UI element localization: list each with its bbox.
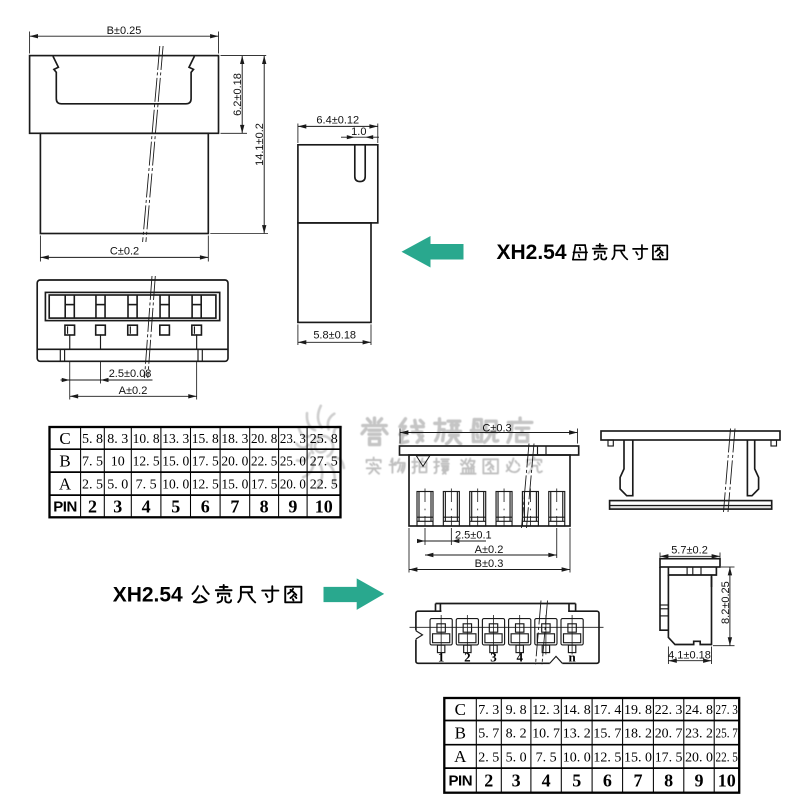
svg-text:23. 2: 23. 2: [685, 727, 713, 742]
svg-text:7. 3: 7. 3: [478, 703, 499, 718]
svg-text:2: 2: [464, 650, 471, 665]
svg-text:PIN: PIN: [53, 498, 77, 515]
svg-text:5: 5: [572, 771, 581, 791]
svg-text:3: 3: [113, 496, 122, 516]
svg-text:22. 3: 22. 3: [655, 703, 683, 718]
svg-text:17. 5: 17. 5: [192, 455, 219, 470]
svg-text:B±0.3: B±0.3: [475, 558, 504, 570]
svg-text:25. 7: 25. 7: [716, 727, 738, 742]
svg-text:PIN: PIN: [449, 773, 473, 790]
svg-text:10: 10: [718, 771, 736, 791]
svg-text:22. 5: 22. 5: [251, 455, 277, 470]
svg-text:13. 3: 13. 3: [162, 432, 189, 447]
svg-text:10: 10: [111, 455, 125, 470]
svg-text:15. 0: 15. 0: [624, 750, 652, 765]
svg-text:5. 0: 5. 0: [107, 478, 128, 493]
svg-text:6: 6: [603, 771, 612, 791]
svg-text:12. 5: 12. 5: [192, 478, 219, 493]
svg-text:10. 8: 10. 8: [133, 432, 160, 447]
svg-text:4: 4: [542, 771, 551, 791]
svg-text:15. 8: 15. 8: [192, 432, 219, 447]
svg-text:4: 4: [516, 650, 523, 665]
svg-text:2: 2: [88, 496, 97, 516]
svg-text:20. 8: 20. 8: [251, 432, 277, 447]
svg-text:A: A: [59, 474, 72, 493]
svg-text:A: A: [454, 747, 467, 766]
svg-text:C: C: [455, 700, 466, 719]
svg-text:5. 8: 5. 8: [82, 432, 103, 447]
svg-text:7. 5: 7. 5: [136, 478, 157, 493]
svg-text:15. 7: 15. 7: [593, 727, 621, 742]
svg-text:6: 6: [201, 496, 210, 516]
svg-text:12. 5: 12. 5: [593, 750, 621, 765]
svg-text:1.0: 1.0: [351, 126, 366, 138]
svg-text:17. 4: 17. 4: [593, 703, 621, 718]
svg-text:10. 0: 10. 0: [162, 478, 189, 493]
svg-text:10: 10: [315, 496, 333, 516]
svg-text:13. 2: 13. 2: [563, 727, 591, 742]
svg-text:B: B: [455, 723, 466, 742]
svg-text:24. 8: 24. 8: [685, 703, 713, 718]
svg-text:5. 0: 5. 0: [506, 750, 527, 765]
svg-text:10. 0: 10. 0: [563, 750, 591, 765]
svg-text:2: 2: [484, 771, 493, 791]
svg-text:18. 3: 18. 3: [221, 432, 248, 447]
svg-text:XH2.54: XH2.54: [113, 584, 183, 607]
svg-text:5.8±0.18: 5.8±0.18: [313, 329, 356, 341]
svg-text:4: 4: [142, 496, 151, 516]
svg-text:6.2±0.18: 6.2±0.18: [232, 73, 244, 116]
svg-text:B: B: [59, 451, 70, 470]
svg-text:9: 9: [695, 771, 704, 791]
svg-text:5: 5: [171, 496, 180, 516]
svg-text:3: 3: [512, 771, 521, 791]
svg-text:17. 5: 17. 5: [655, 750, 683, 765]
svg-text:8. 3: 8. 3: [107, 432, 128, 447]
svg-text:22. 5: 22. 5: [310, 478, 338, 493]
svg-text:2. 5: 2. 5: [82, 478, 103, 493]
svg-text:A±0.2: A±0.2: [119, 385, 148, 397]
svg-text:XH2.54: XH2.54: [497, 241, 567, 264]
svg-text:17. 5: 17. 5: [251, 478, 277, 493]
svg-text:A±0.2: A±0.2: [475, 544, 504, 556]
svg-text:7: 7: [634, 771, 643, 791]
svg-text:1: 1: [438, 650, 445, 665]
svg-text:4.1±0.18: 4.1±0.18: [668, 649, 711, 661]
svg-text:20. 0: 20. 0: [685, 750, 713, 765]
svg-text:9. 8: 9. 8: [506, 703, 527, 718]
svg-text:5. 7: 5. 7: [478, 727, 499, 742]
svg-text:7: 7: [230, 496, 239, 516]
svg-text:2. 5: 2. 5: [478, 750, 499, 765]
svg-text:C±0.3: C±0.3: [482, 423, 511, 435]
svg-text:20. 0: 20. 0: [280, 478, 306, 493]
svg-text:8. 2: 8. 2: [506, 727, 527, 742]
svg-text:25. 0: 25. 0: [280, 455, 306, 470]
svg-text:12. 5: 12. 5: [133, 455, 160, 470]
svg-text:8.2±0.25: 8.2±0.25: [720, 581, 732, 624]
svg-text:12. 3: 12. 3: [532, 703, 560, 718]
svg-text:n: n: [568, 650, 576, 665]
svg-text:8: 8: [260, 496, 269, 516]
svg-text:14. 8: 14. 8: [563, 703, 591, 718]
svg-text:15. 0: 15. 0: [221, 478, 248, 493]
svg-text:6.4±0.12: 6.4±0.12: [316, 115, 359, 127]
svg-text:8: 8: [664, 771, 673, 791]
svg-text:23. 3: 23. 3: [280, 432, 306, 447]
svg-text:19. 8: 19. 8: [624, 703, 652, 718]
svg-text:15. 0: 15. 0: [162, 455, 189, 470]
svg-text:C±0.2: C±0.2: [110, 246, 139, 258]
svg-text:27. 5: 27. 5: [310, 455, 338, 470]
svg-text:5.7±0.2: 5.7±0.2: [671, 545, 708, 557]
svg-text:18. 2: 18. 2: [624, 727, 652, 742]
svg-text:9: 9: [288, 496, 297, 516]
svg-text:27. 3: 27. 3: [716, 703, 738, 718]
svg-text:3: 3: [490, 650, 497, 665]
svg-text:20. 0: 20. 0: [221, 455, 248, 470]
svg-text:C: C: [59, 429, 70, 448]
svg-text:10. 7: 10. 7: [532, 727, 560, 742]
svg-text:14.1±0.2: 14.1±0.2: [254, 123, 266, 166]
svg-text:20. 7: 20. 7: [655, 727, 683, 742]
svg-text:7. 5: 7. 5: [536, 750, 557, 765]
svg-text:22. 5: 22. 5: [716, 750, 738, 765]
svg-text:7. 5: 7. 5: [82, 455, 103, 470]
svg-text:25. 8: 25. 8: [310, 432, 338, 447]
svg-text:2.5±0.1: 2.5±0.1: [455, 529, 492, 541]
svg-text:B±0.25: B±0.25: [107, 25, 142, 37]
